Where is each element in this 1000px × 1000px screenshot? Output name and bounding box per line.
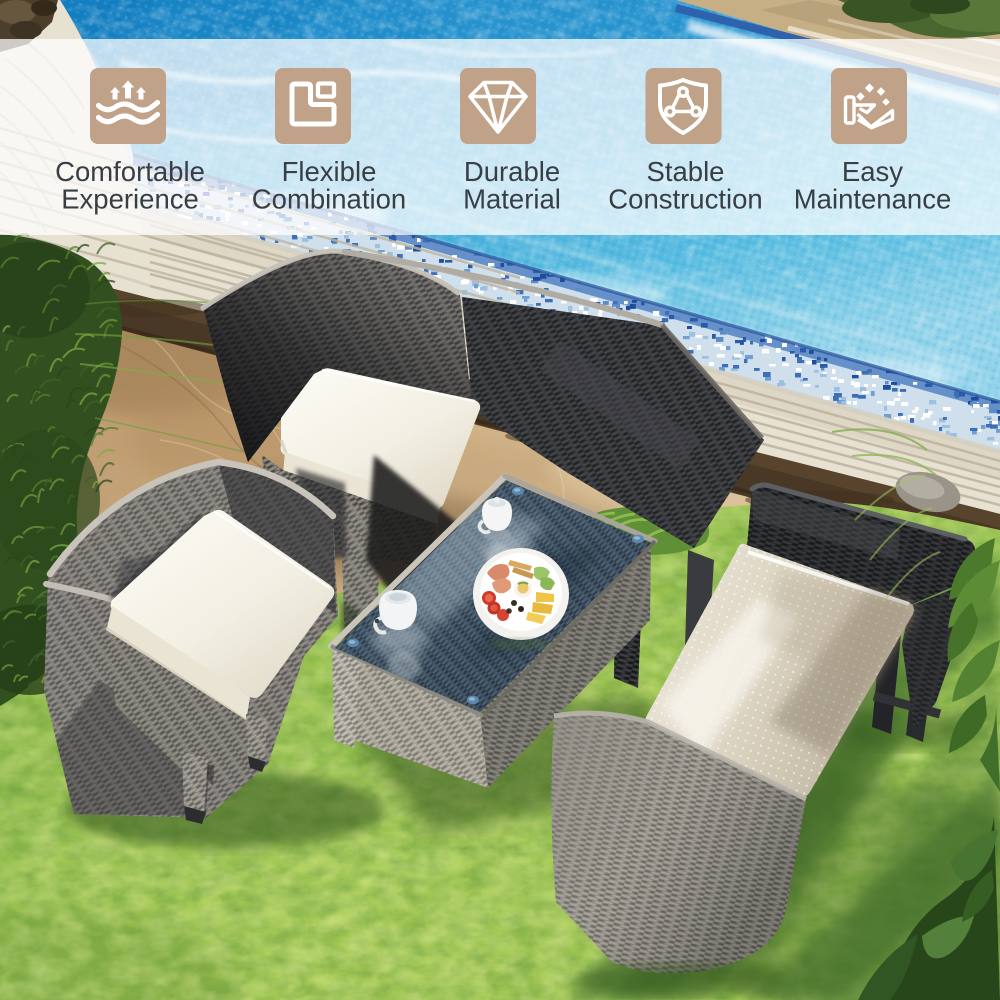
svg-text:Easy: Easy: [842, 156, 903, 187]
svg-text:Combination: Combination: [252, 184, 406, 215]
svg-text:Durable: Durable: [464, 156, 560, 187]
svg-text:Comfortable: Comfortable: [55, 156, 205, 187]
svg-text:Construction: Construction: [608, 184, 762, 215]
svg-text:Flexible: Flexible: [282, 156, 377, 187]
svg-text:Material: Material: [463, 184, 561, 215]
svg-text:Experience: Experience: [61, 184, 199, 215]
svg-text:Maintenance: Maintenance: [794, 184, 951, 215]
svg-text:Stable: Stable: [647, 156, 725, 187]
